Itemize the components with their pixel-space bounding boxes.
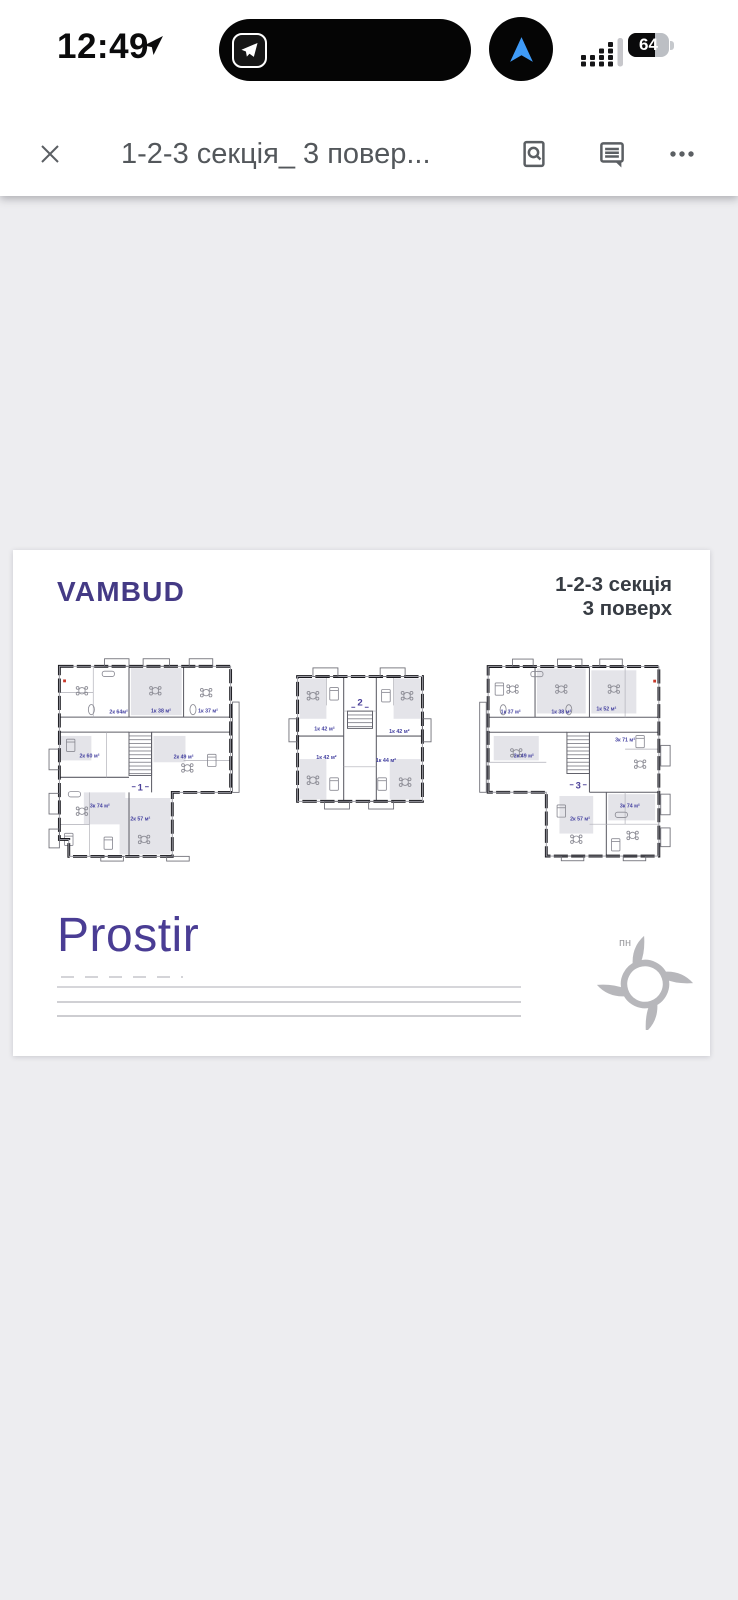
apartment-area-label: 3к 71 м² xyxy=(615,738,635,744)
apartment-area-label: 1к 37 м² xyxy=(501,709,521,715)
status-bar: 12:49 64 xyxy=(0,0,738,112)
page-heading: 1-2-3 секція 3 поверх xyxy=(555,573,672,621)
battery-percent: 64 xyxy=(628,33,669,57)
apartment-area-label: 2к 57 м² xyxy=(570,816,590,822)
status-time: 12:49 xyxy=(57,27,149,67)
navigation-live-activity[interactable] xyxy=(489,17,553,81)
close-icon xyxy=(36,140,64,168)
heading-sections: 1-2-3 секція xyxy=(555,573,672,597)
apartment-area-label: 2к 64м² xyxy=(109,709,128,715)
more-horizontal-icon xyxy=(668,140,696,168)
apartment-area-label: 2к 60 м² xyxy=(80,754,100,760)
floor-plan-section-1: 2к 64м² 1к 38 м² 1к 37 м² 2к 60 м² 2к 49… xyxy=(45,655,245,862)
apartment-area-label: 1к 37 м² xyxy=(198,708,218,714)
document-title: 1-2-3 секція_ 3 повер... xyxy=(121,112,431,196)
navigation-arrow-icon xyxy=(508,35,535,64)
apartment-area-label: 1к 38 м² xyxy=(151,708,171,714)
apartment-area-label: 2к 49 м² xyxy=(514,754,534,760)
close-button[interactable] xyxy=(22,112,78,196)
comment-icon xyxy=(597,139,627,169)
heading-floor: 3 поверх xyxy=(555,597,672,621)
battery-indicator: 64 xyxy=(628,33,669,57)
floor-plan-section-3: 1к 37 м² 1к 38 м² 1к 52 м² 2к 49 м² 3к 7… xyxy=(475,655,672,862)
dynamic-island[interactable] xyxy=(219,19,471,81)
apartment-area-label: 3к 74 м² xyxy=(620,803,640,809)
more-options-button[interactable] xyxy=(654,112,710,196)
comments-button[interactable] xyxy=(584,112,640,196)
apartment-area-label: 1к 42 м² xyxy=(389,729,410,735)
vambud-logo: VAMBUD xyxy=(57,576,185,608)
apartment-area-label: 1к 52 м² xyxy=(596,707,616,713)
telegram-app-icon xyxy=(232,33,267,68)
cellular-signal-icon xyxy=(581,26,627,68)
battery-nub xyxy=(670,41,674,50)
apartment-area-label: 1к 38 м² xyxy=(551,709,571,715)
iphone-screen: 12:49 64 xyxy=(0,0,738,1600)
apartment-area-label: 1к 44 м² xyxy=(376,758,397,764)
pdf-page[interactable]: VAMBUD 1-2-3 секція 3 поверх xyxy=(13,550,710,1056)
find-in-page-icon xyxy=(519,139,549,169)
footer-rule xyxy=(57,986,521,988)
telegram-paperplane-icon xyxy=(241,42,258,59)
fine-print-text xyxy=(61,976,183,978)
section-number: 1 xyxy=(138,781,143,792)
section-number: 3 xyxy=(576,781,581,791)
prostir-logo: Prostir xyxy=(57,908,199,963)
apartment-area-label: 1к 42 м² xyxy=(314,726,335,732)
floor-plan-section-2: 1к 42 м² 1к 42 м² 1к 42 м² 1к 44 м² 2 xyxy=(288,663,432,812)
location-arrow-icon xyxy=(143,35,164,56)
apartment-area-label: 2к 57 м² xyxy=(130,817,150,823)
compass-icon: пн xyxy=(595,930,695,1030)
apartment-area-label: 1к 42 м² xyxy=(316,755,337,761)
footer-rule xyxy=(57,1001,521,1003)
find-in-document-button[interactable] xyxy=(506,112,562,196)
apartment-area-label: 3к 74 м² xyxy=(90,803,110,809)
compass-north-label: пн xyxy=(619,937,631,949)
viewer-canvas[interactable]: VAMBUD 1-2-3 секція 3 поверх xyxy=(0,196,738,1600)
section-number: 2 xyxy=(357,697,362,708)
apartment-area-label: 2к 49 м² xyxy=(174,755,194,761)
footer-rule xyxy=(57,1015,521,1017)
pdf-viewer-toolbar: 1-2-3 секція_ 3 повер... xyxy=(0,112,738,196)
